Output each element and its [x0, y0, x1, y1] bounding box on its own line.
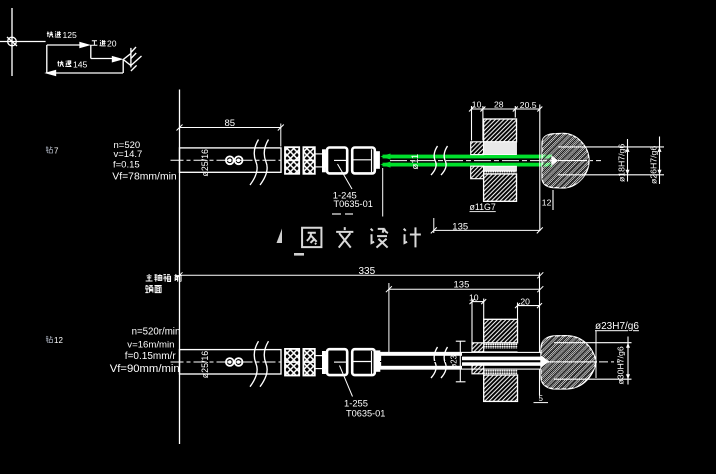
svg-text:145: 145: [73, 59, 88, 69]
svg-text:T0635-01: T0635-01: [334, 199, 373, 209]
svg-text:12: 12: [54, 336, 63, 345]
svg-text:ø23: ø23: [450, 355, 459, 368]
svg-text:ø11: ø11: [410, 154, 421, 170]
svg-text:10: 10: [472, 99, 482, 109]
svg-text:5: 5: [539, 394, 544, 403]
svg-text:20: 20: [107, 39, 117, 49]
svg-text:12: 12: [542, 198, 552, 208]
svg-text:125: 125: [63, 30, 78, 40]
svg-text:135: 135: [454, 280, 470, 291]
svg-text:135: 135: [452, 221, 468, 232]
svg-text:1-255: 1-255: [344, 398, 368, 409]
svg-text:85: 85: [225, 118, 236, 129]
svg-text:T0635-01: T0635-01: [346, 408, 385, 418]
svg-text:f=0.15: f=0.15: [113, 159, 140, 170]
svg-text:10: 10: [469, 292, 479, 302]
svg-text:f=0.15mm/r: f=0.15mm/r: [125, 351, 177, 362]
svg-text:Vf=78mm/min: Vf=78mm/min: [112, 171, 177, 182]
svg-text:ø25/16: ø25/16: [200, 351, 210, 378]
svg-text:20.5: 20.5: [520, 100, 537, 110]
svg-text:7: 7: [54, 146, 59, 155]
svg-text:ø30H7/g6: ø30H7/g6: [616, 346, 626, 384]
svg-text:ø23H7/g6: ø23H7/g6: [595, 321, 639, 332]
svg-text:ø26H7/g6: ø26H7/g6: [649, 146, 659, 184]
svg-text:n=520r/min: n=520r/min: [132, 327, 181, 338]
svg-text:ø18H7/g6: ø18H7/g6: [617, 144, 627, 182]
svg-text:Vf=90mm/min: Vf=90mm/min: [110, 363, 180, 375]
svg-text:v=16m/min: v=16m/min: [127, 340, 174, 351]
svg-text:ø11G7: ø11G7: [470, 202, 496, 212]
svg-text:28: 28: [494, 99, 504, 109]
svg-text:20: 20: [520, 296, 530, 306]
svg-text:335: 335: [359, 266, 376, 277]
svg-text:ø25/16: ø25/16: [200, 149, 210, 176]
